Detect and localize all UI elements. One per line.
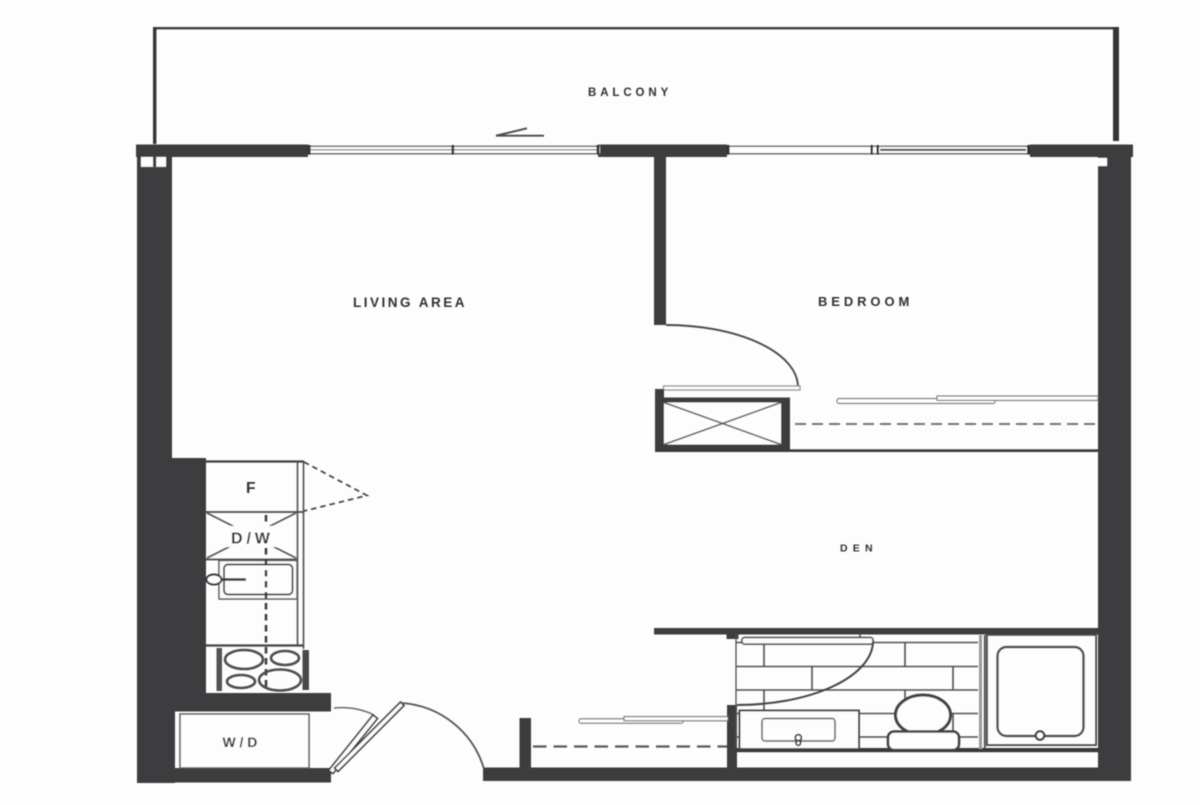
svg-text:W/D: W/D [223, 734, 262, 750]
svg-text:BEDROOM: BEDROOM [818, 294, 913, 309]
svg-text:D/W: D/W [231, 531, 274, 548]
svg-text:LIVING AREA: LIVING AREA [353, 295, 467, 310]
svg-text:DEN: DEN [840, 543, 878, 555]
svg-text:BALCONY: BALCONY [588, 87, 672, 99]
svg-text:F: F [246, 480, 255, 497]
